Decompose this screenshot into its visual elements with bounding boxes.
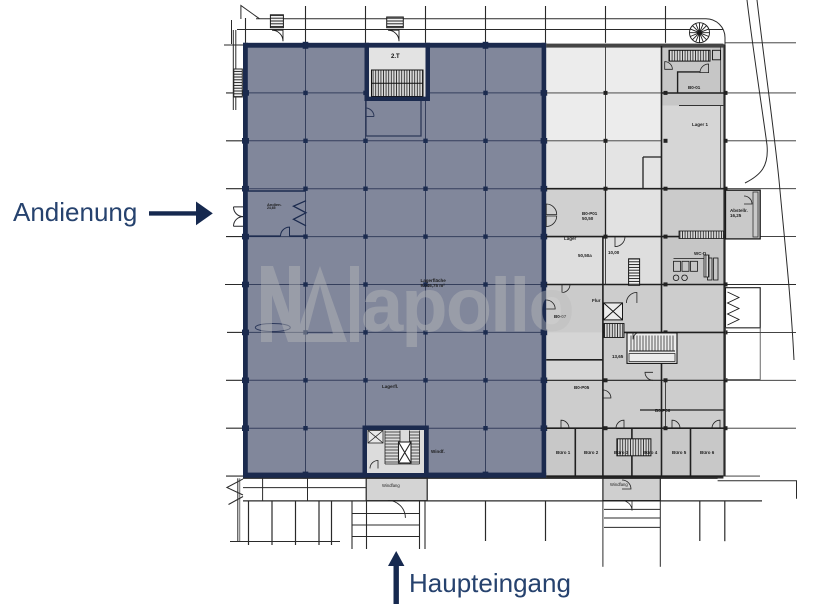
svg-text:Lager: Lager	[564, 236, 577, 241]
svg-text:Büro 2: Büro 2	[584, 450, 599, 455]
svg-text:Windfang: Windfang	[610, 482, 628, 487]
svg-text:24,65: 24,65	[267, 206, 276, 210]
svg-text:WC-D: WC-D	[694, 251, 707, 256]
svg-text:Lagerfl.: Lagerfl.	[382, 384, 398, 389]
svg-text:apollo: apollo	[361, 263, 573, 348]
svg-text:50,50: 50,50	[582, 216, 594, 221]
svg-text:10,00: 10,00	[608, 250, 620, 255]
svg-text:Lager 1: Lager 1	[692, 122, 709, 127]
svg-text:16,25: 16,25	[730, 213, 742, 218]
svg-text:Büro 5: Büro 5	[672, 450, 687, 455]
svg-text:B0-01: B0-01	[688, 85, 701, 90]
svg-text:13,65: 13,65	[612, 354, 624, 359]
svg-text:Andienung: Andienung	[13, 197, 137, 227]
svg-text:50,50a: 50,50a	[578, 253, 592, 258]
svg-text:2.T: 2.T	[391, 54, 400, 60]
svg-text:B0-P06: B0-P06	[655, 408, 671, 413]
svg-text:Büro 6: Büro 6	[700, 450, 715, 455]
svg-text:Windfang: Windfang	[382, 483, 400, 488]
svg-text:Haupteingang: Haupteingang	[409, 568, 571, 598]
svg-text:Büro 3: Büro 3	[614, 450, 629, 455]
svg-text:Flur: Flur	[592, 298, 601, 303]
svg-text:Büro 4: Büro 4	[643, 450, 658, 455]
svg-text:B0-P05: B0-P05	[574, 385, 590, 390]
svg-text:Windf.: Windf.	[431, 449, 445, 454]
svg-text:Büro 1: Büro 1	[556, 450, 571, 455]
